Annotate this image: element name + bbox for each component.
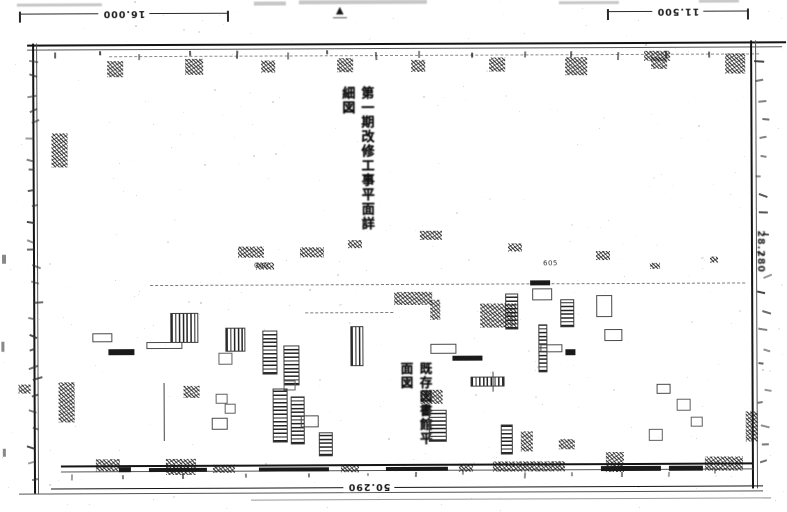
- wall-hatch-tick: [27, 158, 35, 161]
- wall-hatch-tick: [326, 51, 328, 55]
- wall-hatch-tick: [287, 52, 289, 59]
- wall-hatch-tick: [27, 249, 34, 251]
- wall-hatch-tick: [571, 472, 573, 476]
- wall-hatch-tick: [28, 460, 36, 464]
- wall-hatch-tick: [757, 250, 765, 255]
- wall-hatch-tick: [29, 74, 37, 78]
- wall-hatch-tick: [182, 474, 184, 479]
- wall-hatch-tick: [375, 52, 377, 60]
- scan-speckle: [500, 510, 501, 511]
- wall-hatch-tick: [418, 51, 420, 58]
- wall-hatch-tick: [367, 473, 369, 476]
- wall-hatch-tick: [762, 118, 770, 120]
- wall-hatch-tick: [758, 401, 763, 404]
- wall-hatch-tick: [415, 472, 417, 478]
- wall-hatch-tick: [32, 427, 38, 430]
- wall-hatch-tick: [29, 317, 36, 320]
- wall-hatch-tick: [763, 310, 772, 314]
- scanned-floorplan: 16.000 11.500 ▲ 50.290 28.280 第一期改修工事平面詳…: [0, 0, 787, 512]
- wall-hatch-tick: [757, 290, 766, 293]
- wall-hatch-tick: [32, 204, 38, 207]
- wall-hatch-tick: [668, 472, 670, 477]
- wall-hatch-tick: [617, 52, 619, 60]
- wall-hatch-tick: [31, 119, 39, 124]
- wall-hatch-tick: [621, 472, 623, 477]
- wall-hatch-tick: [32, 478, 39, 481]
- wall-hatch-tick: [472, 52, 474, 57]
- wall-hatch-tick: [31, 281, 39, 285]
- wall-hatch-tick: [27, 239, 34, 243]
- wall-hatch-tick: [758, 328, 768, 331]
- wall-hatch-tick: [236, 51, 238, 59]
- wall-hatch-tick: [764, 348, 771, 351]
- wall-hatch-tick: [27, 95, 36, 98]
- wall-hatch-tick: [756, 78, 764, 81]
- wall-hatch-tick: [570, 51, 572, 57]
- wall-hatch-tick: [30, 334, 38, 339]
- wall-hatch-tick: [764, 389, 771, 392]
- wall-hatch-tick: [461, 471, 463, 475]
- wall-hatch-tick: [29, 59, 38, 62]
- wall-hatch-tick: [763, 233, 769, 235]
- wall-hatch-tick: [27, 189, 33, 192]
- wall-hatch-tick: [762, 443, 769, 445]
- wall-hatch-tick: [26, 138, 35, 140]
- wall-hatch-tick: [308, 473, 310, 477]
- wall-hatch-tick: [54, 52, 56, 58]
- wall-hatch-tick: [759, 212, 768, 214]
- wall-hatch-tick: [714, 470, 716, 474]
- wall-hatch-tick: [760, 459, 767, 463]
- wall-hatch-tick: [763, 273, 772, 278]
- wall-hatch-layer: [0, 0, 787, 512]
- wall-hatch-tick: [71, 474, 73, 480]
- wall-hatch-tick: [31, 393, 38, 397]
- wall-hatch-tick: [759, 362, 765, 364]
- wall-hatch-tick: [759, 193, 768, 197]
- wall-hatch-tick: [29, 365, 38, 370]
- wall-hatch-tick: [665, 51, 667, 58]
- wall-hatch-tick: [33, 301, 43, 303]
- wall-hatch-tick: [758, 100, 767, 102]
- wall-hatch-tick: [27, 445, 35, 449]
- wall-hatch-tick: [754, 60, 764, 62]
- wall-hatch-tick: [29, 108, 37, 113]
- wall-hatch-tick: [26, 221, 35, 224]
- wall-hatch-tick: [524, 51, 526, 57]
- wall-hatch-tick: [760, 136, 767, 139]
- wall-hatch-tick: [29, 348, 36, 352]
- wall-hatch-tick: [99, 52, 101, 56]
- wall-hatch-tick: [756, 175, 761, 177]
- wall-hatch-tick: [760, 155, 766, 158]
- wall-hatch-tick: [32, 264, 41, 269]
- wall-hatch-tick: [245, 473, 247, 478]
- wall-hatch-tick: [32, 376, 42, 380]
- wall-hatch-tick: [189, 51, 191, 57]
- wall-hatch-tick: [29, 409, 37, 413]
- wall-hatch-tick: [708, 51, 710, 57]
- wall-hatch-tick: [523, 472, 525, 478]
- wall-hatch-tick: [761, 425, 770, 429]
- wall-hatch-tick: [29, 169, 34, 171]
- wall-hatch-tick: [138, 54, 140, 60]
- wall-hatch-tick: [122, 475, 124, 480]
